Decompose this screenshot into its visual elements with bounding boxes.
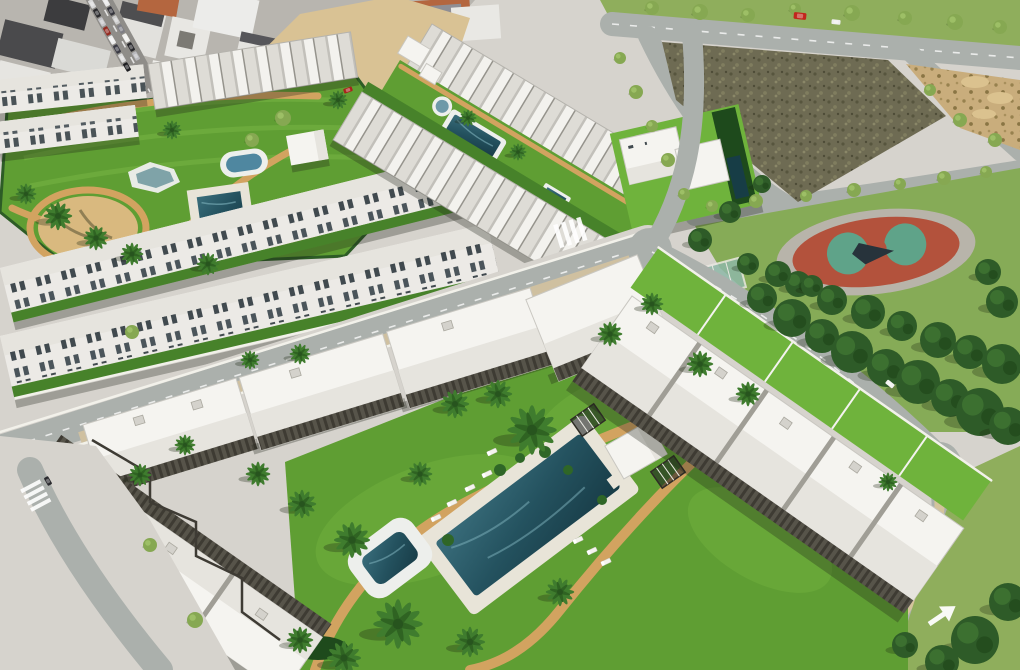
car [793,12,806,20]
scene-canvas [0,0,1020,670]
car [831,19,840,25]
resort1-clubhouse [286,129,330,172]
aerial-render-image [0,0,1020,670]
